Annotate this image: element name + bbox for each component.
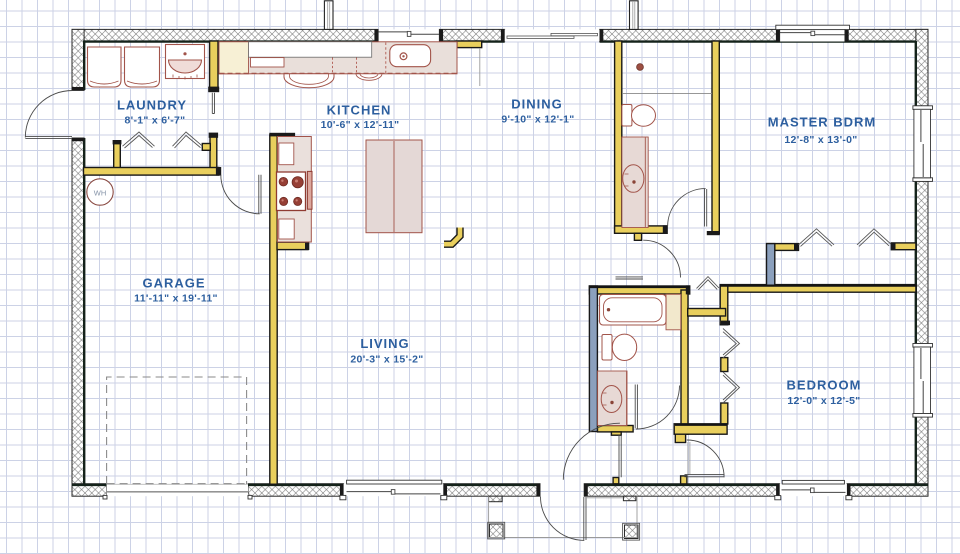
svg-text:WH: WH	[94, 188, 107, 197]
svg-text:20'-3" x 15'-2": 20'-3" x 15'-2"	[350, 354, 423, 366]
svg-text:9'-10" x 12'-1": 9'-10" x 12'-1"	[501, 114, 574, 126]
svg-text:LAUNDRY: LAUNDRY	[117, 98, 187, 113]
svg-text:BEDROOM: BEDROOM	[787, 378, 862, 393]
svg-text:8'-1" x 6'-7": 8'-1" x 6'-7"	[125, 115, 186, 127]
svg-text:12'-8" x 13'-0": 12'-8" x 13'-0"	[784, 134, 857, 146]
svg-text:LIVING: LIVING	[360, 336, 409, 351]
svg-text:GARAGE: GARAGE	[142, 276, 205, 291]
svg-text:DINING: DINING	[511, 97, 563, 112]
svg-text:10'-6" x 12'-11": 10'-6" x 12'-11"	[321, 119, 400, 131]
svg-text:MASTER BDRM: MASTER BDRM	[768, 115, 877, 130]
svg-text:11'-11" x 19'-11": 11'-11" x 19'-11"	[134, 293, 218, 305]
svg-text:12'-0" x 12'-5": 12'-0" x 12'-5"	[787, 395, 860, 407]
svg-text:KITCHEN: KITCHEN	[327, 103, 392, 118]
